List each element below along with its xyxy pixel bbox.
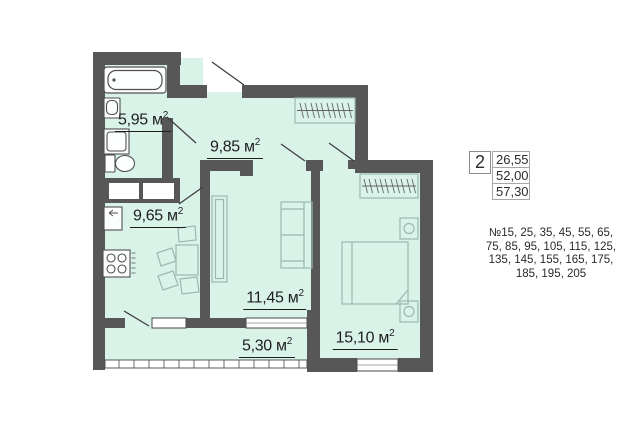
kitchen-balcony-window bbox=[152, 318, 186, 328]
room-label-living-room: 11,45 м2 bbox=[243, 288, 306, 310]
area-living: 26,55 bbox=[492, 151, 530, 168]
area-total: 52,00 bbox=[492, 167, 530, 184]
balcony-glazing bbox=[105, 360, 307, 368]
rooms-count: 2 bbox=[475, 152, 485, 173]
apartment-numbers-line: 185, 195, 205 bbox=[462, 268, 640, 282]
room-label-bedroom: 15,10 м2 bbox=[333, 328, 398, 350]
kitchen-sink-icon bbox=[104, 207, 122, 230]
apartment-numbers-line: №15, 25, 35, 45, 55, 65, bbox=[462, 227, 640, 241]
apartment-numbers-line: 75, 85, 95, 105, 115, 125, bbox=[462, 241, 640, 255]
entry-door bbox=[212, 62, 244, 85]
washing-machine-icon bbox=[104, 129, 129, 154]
floor-plan-page: 5,95 м2 9,85 м2 9,65 м2 11,45 м2 5,30 м2… bbox=[0, 0, 640, 422]
area-overall: 57,30 bbox=[492, 183, 530, 200]
bathtub-icon bbox=[104, 67, 166, 93]
room-label-balcony: 5,30 м2 bbox=[239, 336, 295, 358]
rooms-count-box: 2 bbox=[469, 151, 491, 174]
areas-table: 26,55 52,00 57,30 bbox=[492, 151, 530, 200]
toilet-icon bbox=[105, 155, 135, 172]
floor-plan bbox=[0, 0, 455, 422]
apartment-spec: 2 26,55 52,00 57,30 bbox=[469, 151, 530, 200]
room-label-hallway: 9,85 м2 bbox=[207, 137, 263, 159]
apartment-numbers: №15, 25, 35, 45, 55, 65, 75, 85, 95, 105… bbox=[462, 227, 640, 281]
room-label-kitchen: 9,65 м2 bbox=[130, 206, 186, 228]
room-label-bathroom: 5,95 м2 bbox=[115, 110, 171, 132]
apartment-numbers-line: 135, 145, 155, 165, 175, bbox=[462, 254, 640, 268]
